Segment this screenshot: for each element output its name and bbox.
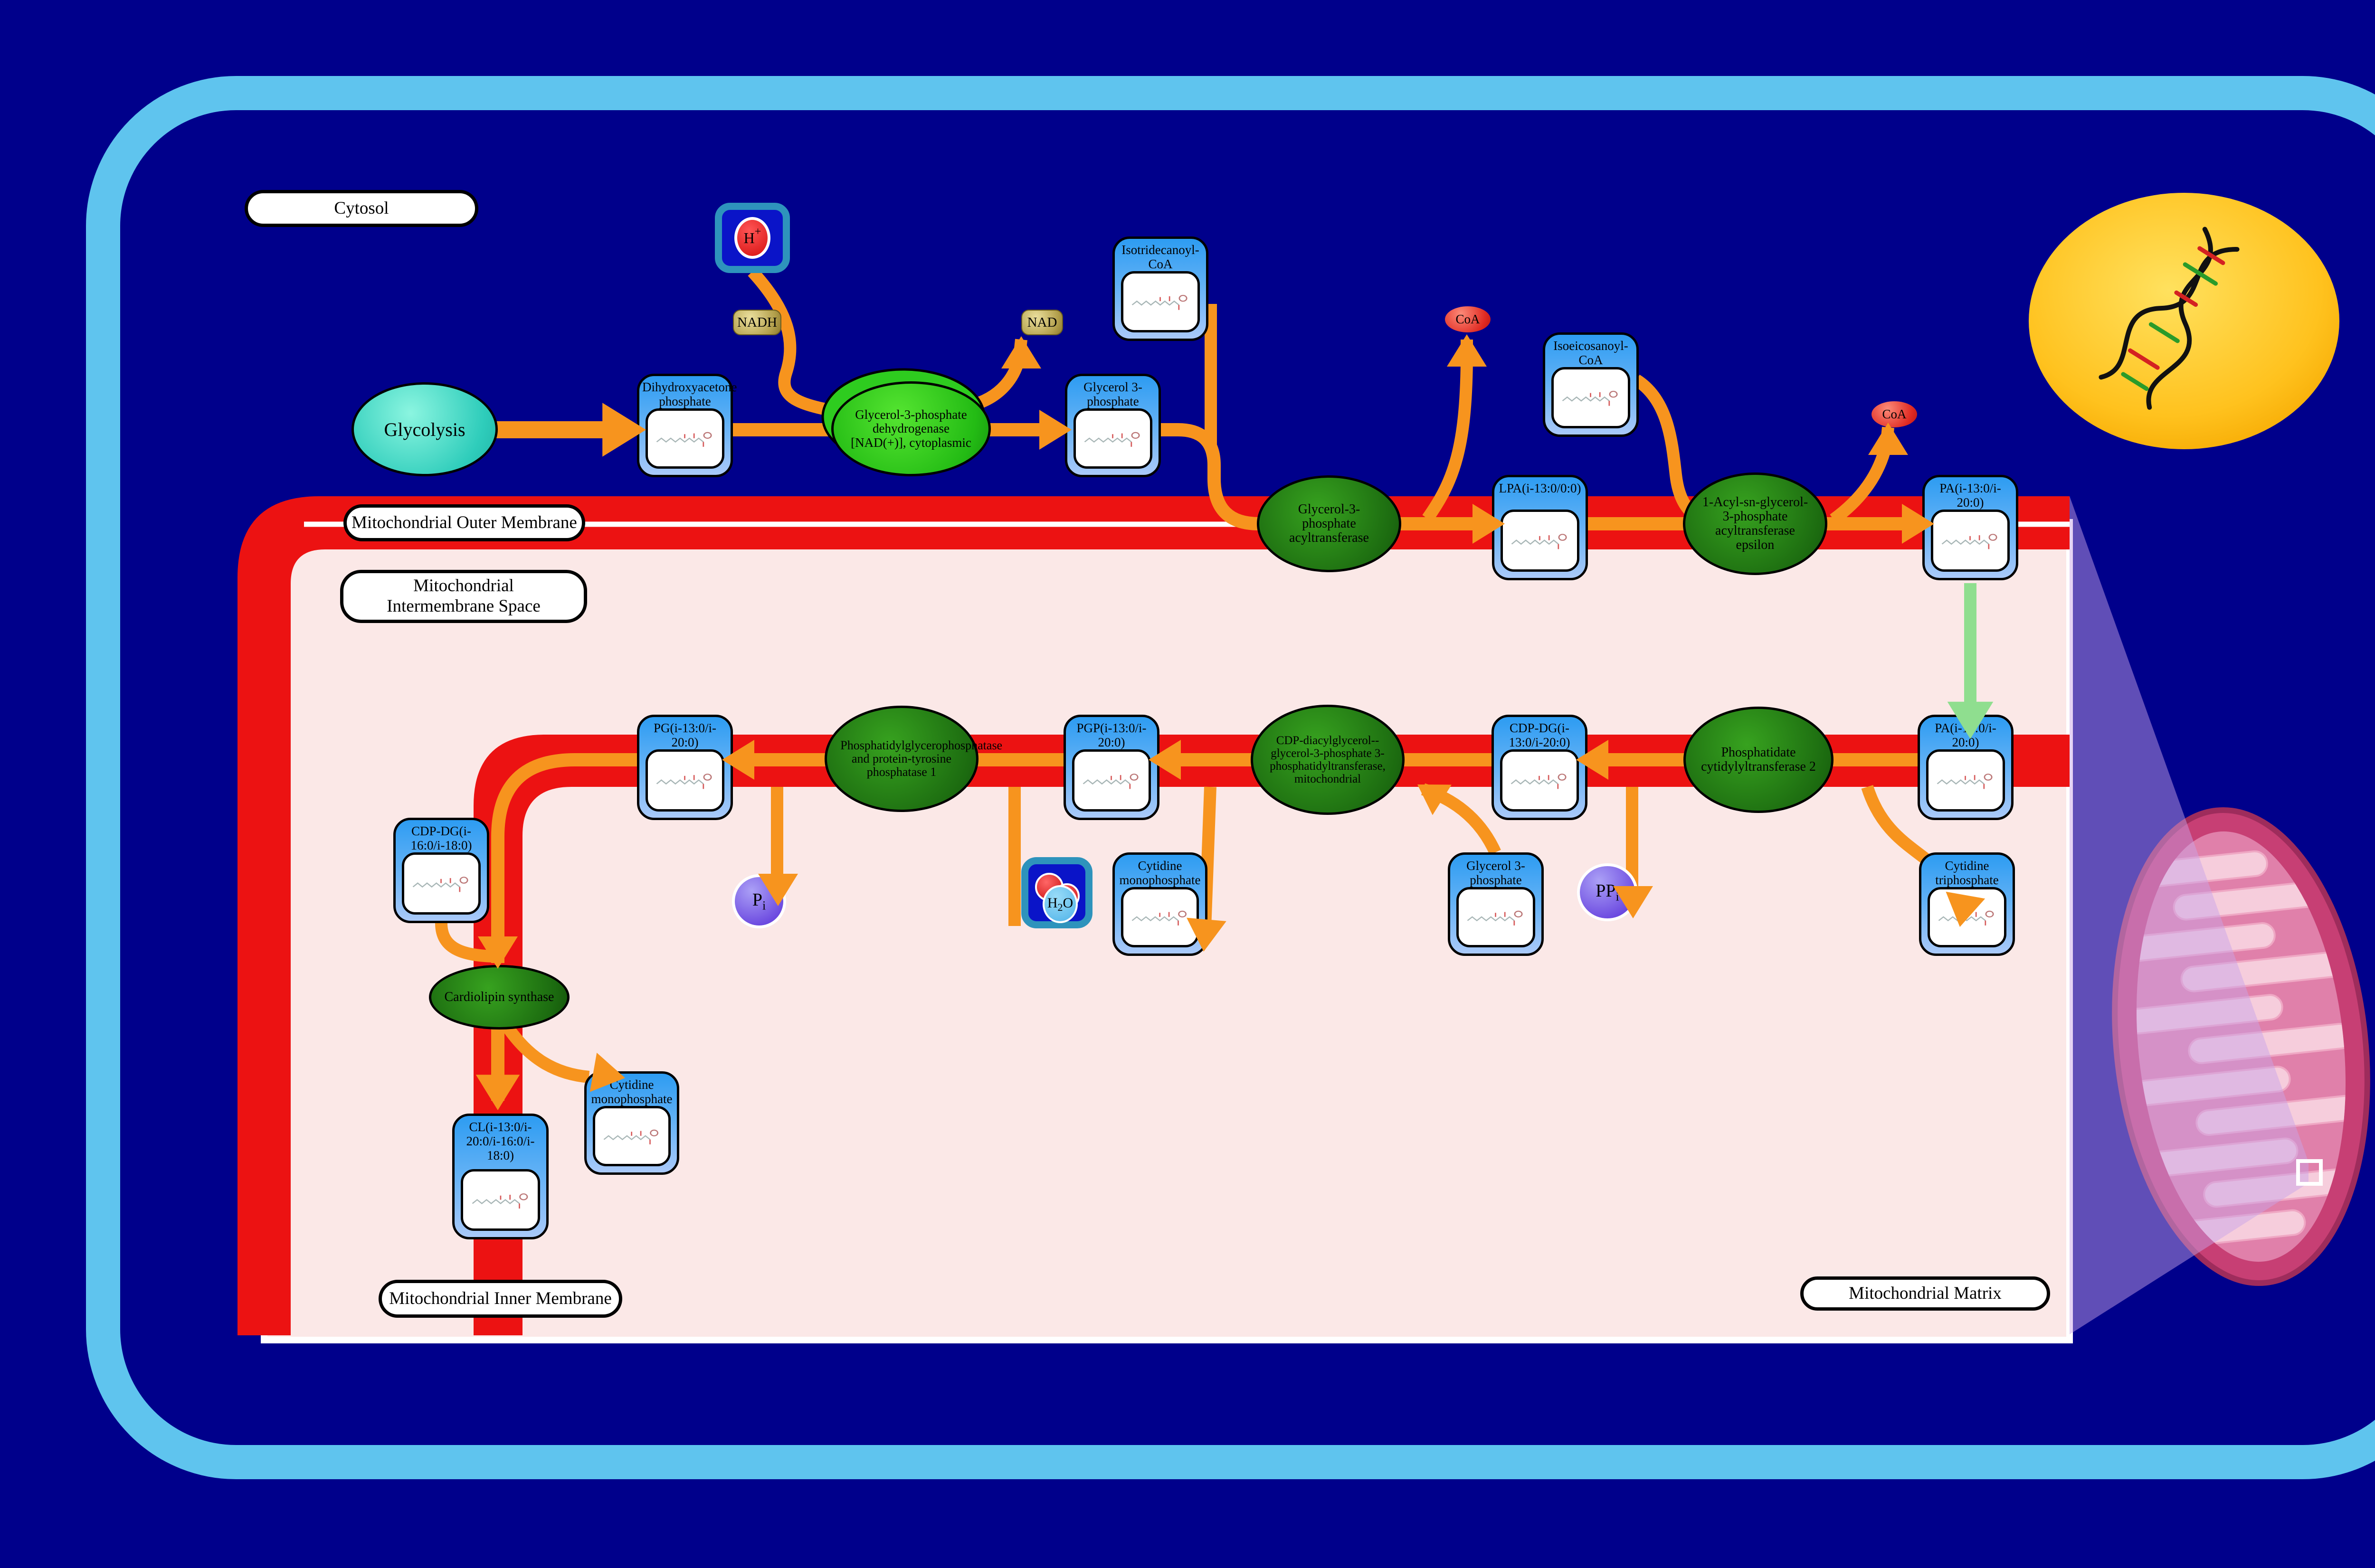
arrowhead [1902, 504, 1934, 544]
arrowhead [1184, 918, 1226, 954]
arrowhead [1947, 702, 1994, 739]
arrowhead [722, 740, 754, 780]
arrowhead [1001, 336, 1041, 368]
arrowheads [0, 0, 2375, 1568]
arrowhead [1039, 410, 1072, 450]
arrowhead [1472, 504, 1505, 544]
arrowhead [758, 874, 798, 906]
arrowhead [476, 1075, 520, 1110]
arrowhead [602, 403, 646, 456]
arrowhead [1940, 892, 1985, 931]
arrowhead [1613, 886, 1653, 918]
arrowhead [1408, 769, 1452, 815]
arrowhead [590, 1053, 629, 1098]
pathway-canvas: Dihydroxyacetone phosphateGlycerol 3-pho… [0, 0, 2375, 1568]
arrowhead [478, 936, 518, 969]
arrowhead [1576, 740, 1608, 780]
arrowhead [1149, 740, 1181, 780]
arrowhead [1868, 423, 1908, 455]
arrowhead [1447, 334, 1487, 367]
